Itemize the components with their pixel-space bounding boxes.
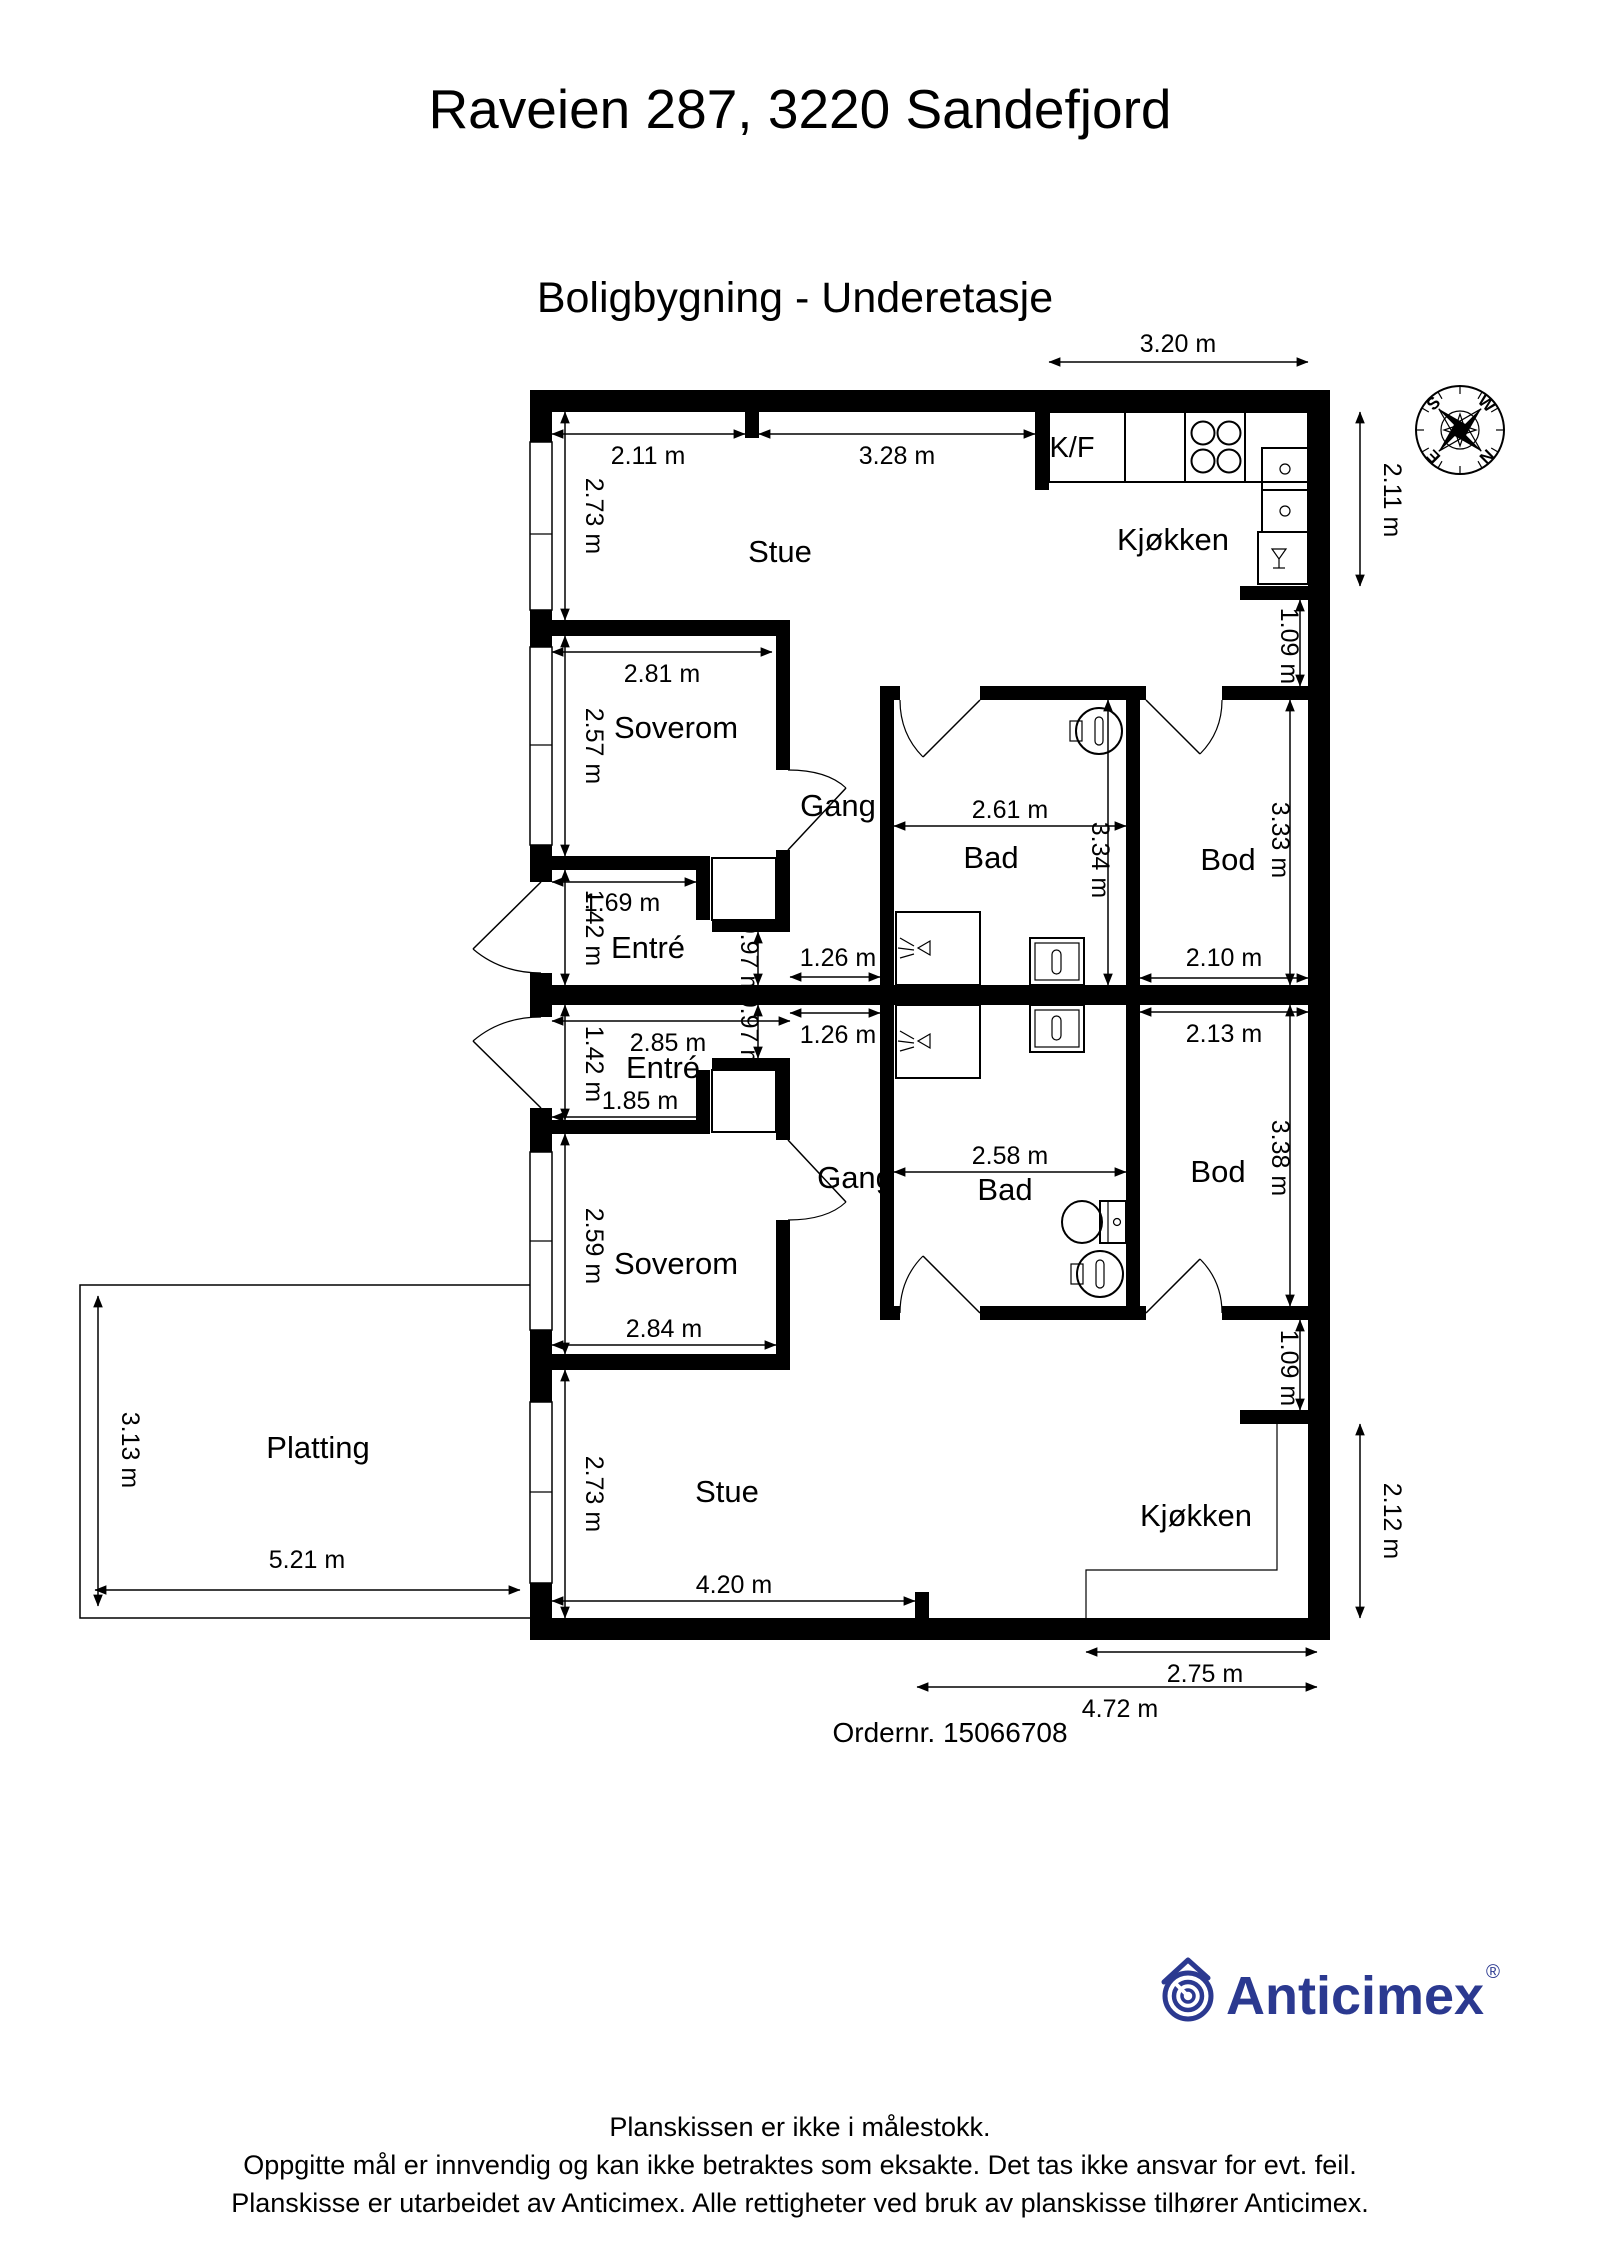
footer-disclaimer: Planskissen er ikke i målestokk. Oppgitt… (231, 2112, 1369, 2218)
dim-stue-top-right: 3.28 m (759, 434, 1035, 470)
svg-text:3.28 m: 3.28 m (859, 442, 935, 470)
svg-text:2.59 m: 2.59 m (580, 1208, 608, 1284)
dim-text: 3.13 m (116, 1412, 144, 1488)
svg-text:4.72 m: 4.72 m (1082, 1695, 1158, 1723)
svg-text:2.58 m: 2.58 m (972, 1142, 1048, 1170)
room-label-entre-upper: Entré (611, 930, 685, 965)
dim-bad2-width: 2.58 m (894, 1142, 1126, 1172)
room-label-gang-lower: Gang (817, 1160, 893, 1195)
dimensions-upper: 3.20 m 2.11 m 3.28 m 2.73 m 2.81 m 2.57 … (552, 330, 1406, 996)
svg-text:1.09 m: 1.09 m (1275, 1330, 1303, 1406)
footer-line-1: Planskissen er ikke i målestokk. (609, 2112, 990, 2142)
dim-kitchen2-right: 2.12 m (1360, 1424, 1406, 1618)
door-bad-lower (900, 1256, 980, 1313)
svg-text:2.73 m: 2.73 m (580, 478, 608, 554)
dim-entre2-inner: 1.85 m (552, 1087, 709, 1117)
dim-stue-top-left: 2.11 m (552, 434, 745, 470)
header: Raveien 287, 3220 Sandefjord Boligbygnin… (428, 78, 1171, 322)
door-bod-upper (1146, 700, 1222, 754)
dim-stue-left: 2.73 m (565, 412, 608, 620)
entry-door-lower (473, 1017, 541, 1108)
room-label-bod-upper: Bod (1200, 842, 1255, 877)
shower-icon (896, 912, 980, 985)
svg-text:2.75 m: 2.75 m (1167, 1660, 1243, 1688)
dim-gang-width: 1.26 m (790, 944, 880, 977)
svg-text:2.85 m: 2.85 m (630, 1029, 706, 1057)
window-stue-upper (530, 442, 552, 610)
room-label-bad-upper: Bad (963, 840, 1018, 875)
walls (530, 390, 1330, 1640)
svg-text:1.09 m: 1.09 m (1275, 608, 1303, 684)
dim-gang-passage: 0.97 m (735, 920, 763, 996)
door-bad-upper (900, 700, 980, 757)
svg-text:2.11 m: 2.11 m (611, 442, 686, 470)
dim-stue2-bottom: 4.20 m (552, 1571, 915, 1601)
dim-kitchen2-bottom: 2.75 m (1086, 1652, 1317, 1688)
svg-text:2.81 m: 2.81 m (624, 660, 700, 688)
dim-bad-height: 3.34 m (1086, 700, 1114, 985)
dim-right-gap: 1.09 m (1275, 600, 1303, 686)
stove-icon (1192, 422, 1241, 473)
dim-soverom-top: 2.81 m (552, 652, 772, 688)
dim-platting-height: 3.13 m (98, 1296, 144, 1606)
svg-text:1.26 m: 1.26 m (800, 1021, 876, 1049)
dim-bod-height: 3.33 m (1266, 700, 1294, 985)
dim-soverom-left: 2.57 m (565, 636, 608, 856)
dim-platting-width: 5.21 m (95, 1546, 520, 1590)
room-label-platting: Platting (266, 1430, 369, 1465)
floorplan-canvas: Raveien 287, 3220 Sandefjord Boligbygnin… (0, 0, 1600, 2263)
compass-icon: S W N E (1416, 386, 1504, 474)
room-label-kf: K/F (1049, 432, 1094, 464)
room-label-soverom-upper: Soverom (614, 710, 738, 745)
dim-stue2-left: 2.73 m (565, 1370, 608, 1618)
dim-bod2-height: 3.38 m (1266, 1005, 1294, 1306)
sink-rect-icon (1030, 938, 1084, 985)
svg-text:0.97 m: 0.97 m (735, 994, 763, 1070)
floorplan-page: Raveien 287, 3220 Sandefjord Boligbygnin… (0, 0, 1600, 2263)
page-title: Raveien 287, 3220 Sandefjord (428, 78, 1171, 140)
svg-text:4.20 m: 4.20 m (696, 1571, 772, 1599)
svg-text:3.38 m: 3.38 m (1266, 1120, 1294, 1196)
washbasin-round-icon (1070, 708, 1122, 754)
door-bod-lower (1146, 1259, 1222, 1313)
entry-door-upper (473, 882, 541, 973)
window-soverom-upper (530, 647, 552, 845)
dim-gang2-width: 1.26 m (790, 1013, 880, 1049)
order-number: Ordernr. 15066708 (832, 1717, 1067, 1748)
svg-text:2.61 m: 2.61 m (972, 796, 1048, 824)
wardrobe-upper (712, 858, 776, 920)
dim-entre-width: 1.69 m (552, 882, 696, 917)
window-stue-lower (530, 1402, 552, 1583)
room-label-bad-lower: Bad (977, 1172, 1032, 1207)
dim-bod-width: 2.10 m (1140, 944, 1308, 978)
room-label-kjokken-lower: Kjøkken (1140, 1498, 1252, 1533)
anticimex-logo-icon (1164, 1960, 1211, 2019)
dim-kitchen-right: 2.11 m (1360, 412, 1406, 586)
svg-text:2.73 m: 2.73 m (580, 1456, 608, 1532)
washbasin-round-icon (1071, 1251, 1123, 1297)
svg-text:2.12 m: 2.12 m (1378, 1483, 1406, 1559)
room-label-soverom-lower: Soverom (614, 1246, 738, 1281)
dim-kitchen-top: 3.20 m (1049, 330, 1308, 362)
room-label-kjokken-upper: Kjøkken (1117, 522, 1229, 557)
room-label-bod-lower: Bod (1190, 1154, 1245, 1189)
svg-text:2.13 m: 2.13 m (1186, 1020, 1262, 1048)
sink-rect-icon (1030, 1005, 1084, 1052)
svg-text:2.11 m: 2.11 m (1378, 463, 1406, 538)
kitchen-upper-fixtures: K/F (1049, 412, 1308, 584)
platting-deck: Platting 3.13 m 5.21 m (80, 1285, 532, 1618)
room-label-stue-lower: Stue (695, 1474, 759, 1509)
dishwasher-icon (1258, 532, 1308, 584)
svg-text:1.42 m: 1.42 m (580, 890, 608, 966)
svg-text:3.33 m: 3.33 m (1266, 802, 1294, 878)
toilet-icon (1062, 1201, 1126, 1243)
sink-icon (1262, 448, 1308, 532)
wardrobe-lower (712, 1070, 776, 1132)
dim-entre-height: 1.42 m (565, 870, 608, 985)
footer-line-2: Oppgitte mål er innvendig og kan ikke be… (243, 2150, 1357, 2180)
svg-text:2.10 m: 2.10 m (1186, 944, 1262, 972)
anticimex-logo-text: Anticimex (1226, 1966, 1484, 2026)
room-label-stue-upper: Stue (748, 534, 812, 569)
window-soverom-lower (530, 1152, 552, 1330)
page-subtitle: Boligbygning - Underetasje (537, 274, 1053, 322)
svg-text:0.97 m: 0.97 m (735, 920, 763, 996)
dim-gang2-passage: 0.97 m (735, 994, 763, 1070)
dim-right2-gap: 1.09 m (1275, 1320, 1303, 1410)
svg-text:1.26 m: 1.26 m (800, 944, 876, 972)
svg-text:1.85 m: 1.85 m (602, 1087, 678, 1115)
svg-text:2.57 m: 2.57 m (580, 708, 608, 784)
svg-text:3.34 m: 3.34 m (1086, 822, 1114, 898)
svg-text:3.20 m: 3.20 m (1140, 330, 1216, 358)
dim-soverom2-left: 2.59 m (565, 1134, 608, 1354)
dim-text: 5.21 m (269, 1546, 345, 1574)
footer-line-3: Planskisse er utarbeidet av Anticimex. A… (231, 2188, 1369, 2218)
dim-bod2-width: 2.13 m (1140, 1012, 1308, 1048)
room-label-gang-upper: Gang (800, 788, 876, 823)
svg-text:2.84 m: 2.84 m (626, 1315, 702, 1343)
anticimex-registered-mark: ® (1486, 1962, 1500, 1983)
shower-icon (896, 1005, 980, 1078)
anticimex-logo: Anticimex ® (1164, 1960, 1500, 2026)
room-labels: Stue Kjøkken Soverom Gang Entré Bad Bod … (611, 522, 1256, 1533)
dim-soverom2-bottom: 2.84 m (552, 1315, 776, 1345)
